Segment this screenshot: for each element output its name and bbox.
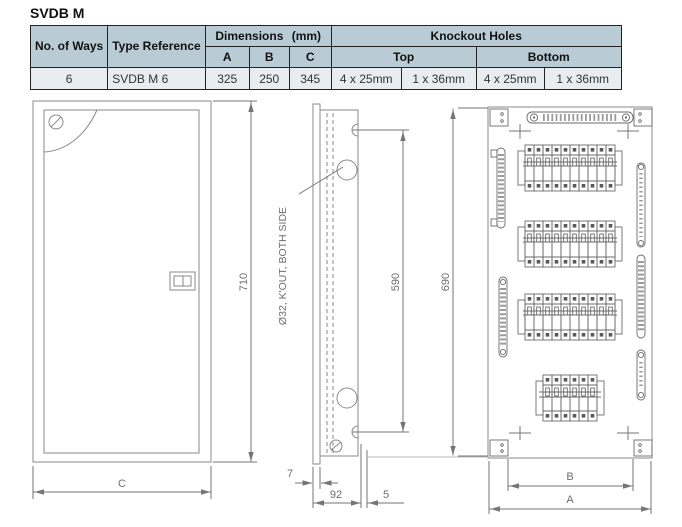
dim-label-overall-width: A	[566, 494, 574, 506]
side-view: Ø32, K'OUT, BOTH SIDE 590 690 7 92 5	[277, 104, 488, 508]
dim-label-front-height: 710	[238, 273, 250, 291]
datasheet-page: SVDB M No. of Ways Type Reference Dimens…	[0, 0, 682, 527]
mcb-row	[518, 294, 622, 340]
front-view: 710 C	[33, 101, 257, 499]
technical-drawings: 710 C Ø32, K'OUT, BOTH SIDE	[0, 0, 682, 527]
dim-label-overall-height: 690	[440, 273, 452, 291]
dim-label-rear-offset: 5	[383, 489, 389, 501]
mcb-row	[518, 145, 622, 191]
mcb-row	[518, 221, 622, 267]
enclosure-outline	[33, 101, 211, 462]
front-flange	[313, 104, 320, 464]
dim-label-front-width: C	[118, 478, 126, 490]
knockout-note: Ø32, K'OUT, BOTH SIDE	[277, 207, 289, 325]
dim-label-fixing-width: B	[566, 471, 573, 483]
dim-label-hole-spacing: 590	[390, 273, 402, 291]
dim-label-depth: 92	[330, 489, 342, 501]
internal-view: B A	[488, 107, 652, 514]
dim-label-flange: 7	[287, 468, 293, 480]
